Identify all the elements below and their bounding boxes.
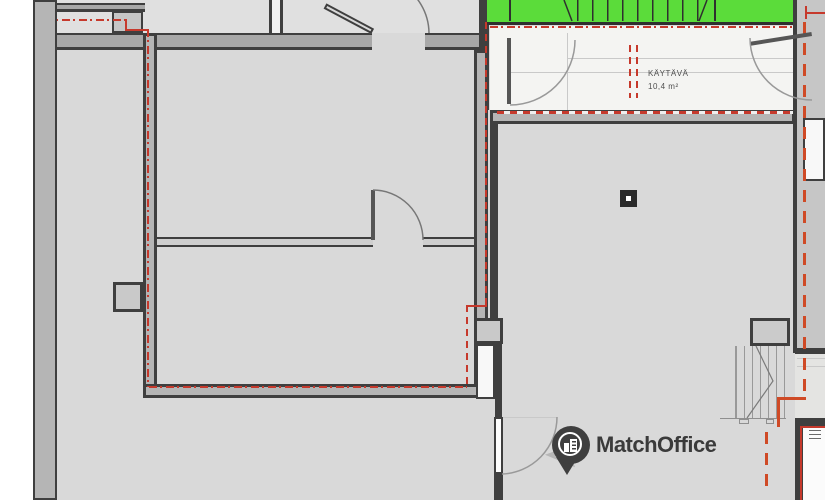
- floor-plan: KÄYTÄVÄ 10,4 m²: [0, 0, 825, 500]
- wall: [795, 418, 825, 426]
- building-location-pin-icon: [552, 426, 590, 464]
- wall: [157, 237, 373, 247]
- premises-boundary-line: [803, 22, 806, 400]
- corridor: [490, 26, 793, 110]
- wall: [793, 0, 797, 353]
- premises-boundary-line: [629, 45, 631, 98]
- wall: [425, 33, 479, 50]
- matchoffice-watermark: MatchOffice: [545, 420, 730, 482]
- premises-boundary-line: [777, 397, 780, 427]
- corridor-area-label: 10,4 m²: [648, 81, 679, 92]
- wall: [57, 33, 372, 50]
- premises-boundary-line: [466, 305, 468, 388]
- stair-tread: [509, 0, 511, 21]
- page-margin: [0, 0, 33, 500]
- premises-boundary-line: [45, 19, 127, 21]
- premises-boundary-line: [800, 426, 825, 428]
- column-marker-center: [626, 196, 631, 201]
- stair-tab: [766, 419, 774, 424]
- wall: [795, 348, 825, 354]
- wall: [423, 237, 474, 247]
- exterior-wall: [33, 0, 57, 500]
- premises-boundary-line: [800, 426, 802, 500]
- wall: [143, 33, 157, 398]
- shaft-niche: [803, 118, 825, 181]
- landing-line: [797, 358, 825, 359]
- door-leaf: [371, 190, 375, 240]
- door-closed-line: [500, 417, 557, 418]
- corridor-label: KÄYTÄVÄ: [648, 68, 688, 79]
- premises-boundary-line: [497, 111, 793, 114]
- wall: [494, 473, 503, 500]
- room-top-middle: [283, 0, 479, 33]
- stair-landing: [795, 353, 825, 418]
- room-lower: [157, 247, 474, 384]
- room-upper: [157, 50, 474, 237]
- premises-boundary-line: [125, 29, 149, 31]
- premises-boundary-line: [149, 386, 467, 388]
- wall-box: [474, 318, 503, 344]
- premises-boundary-line: [485, 22, 487, 305]
- premises-boundary-line: [466, 305, 487, 307]
- fixture-symbol: [809, 430, 821, 441]
- boundary-tick: [805, 6, 807, 19]
- premises-boundary-line: [147, 29, 149, 387]
- premises-boundary-line: [636, 45, 638, 98]
- boundary-tick: [806, 12, 825, 14]
- premises-boundary-line: [490, 26, 793, 28]
- stair-landing-box: [750, 318, 790, 346]
- brand-text: MatchOffice: [596, 432, 716, 458]
- premises-boundary-line: [765, 432, 768, 492]
- wall: [490, 124, 498, 318]
- building-icon: [564, 443, 569, 452]
- stair-treads: [577, 0, 702, 21]
- door-leaf: [494, 417, 503, 474]
- premises-boundary-line: [779, 397, 806, 400]
- wall: [269, 0, 283, 34]
- landing-line: [797, 366, 825, 367]
- window-opening: [476, 344, 495, 399]
- door-leaf: [507, 38, 511, 104]
- stair-tread: [714, 0, 716, 21]
- stair-tab: [739, 419, 749, 424]
- pilaster: [113, 282, 143, 312]
- corridor-line: [567, 58, 793, 59]
- building-windows: [572, 441, 576, 450]
- wall: [495, 344, 502, 417]
